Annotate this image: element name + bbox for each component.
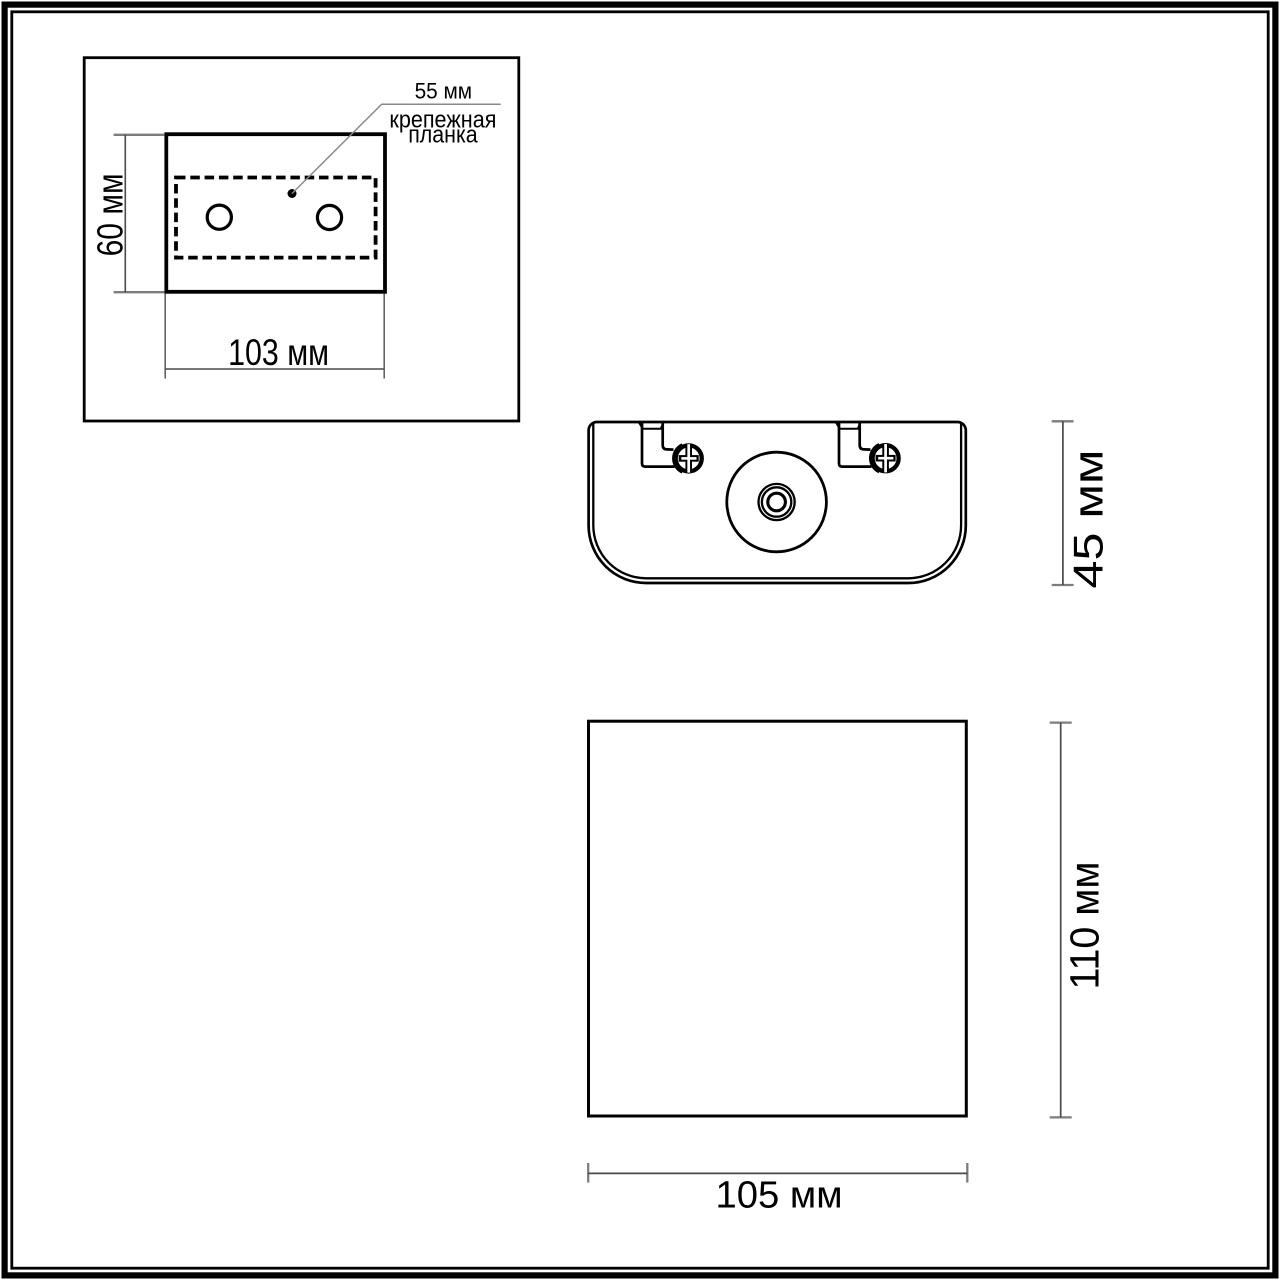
svg-text:103 мм: 103 мм [228, 332, 329, 373]
svg-text:45 мм: 45 мм [1064, 450, 1111, 589]
svg-text:планка: планка [408, 122, 478, 149]
svg-text:55 мм: 55 мм [415, 79, 473, 104]
svg-text:105 мм: 105 мм [716, 1173, 843, 1216]
svg-text:110 мм: 110 мм [1062, 862, 1108, 990]
svg-text:60 мм: 60 мм [89, 173, 130, 256]
